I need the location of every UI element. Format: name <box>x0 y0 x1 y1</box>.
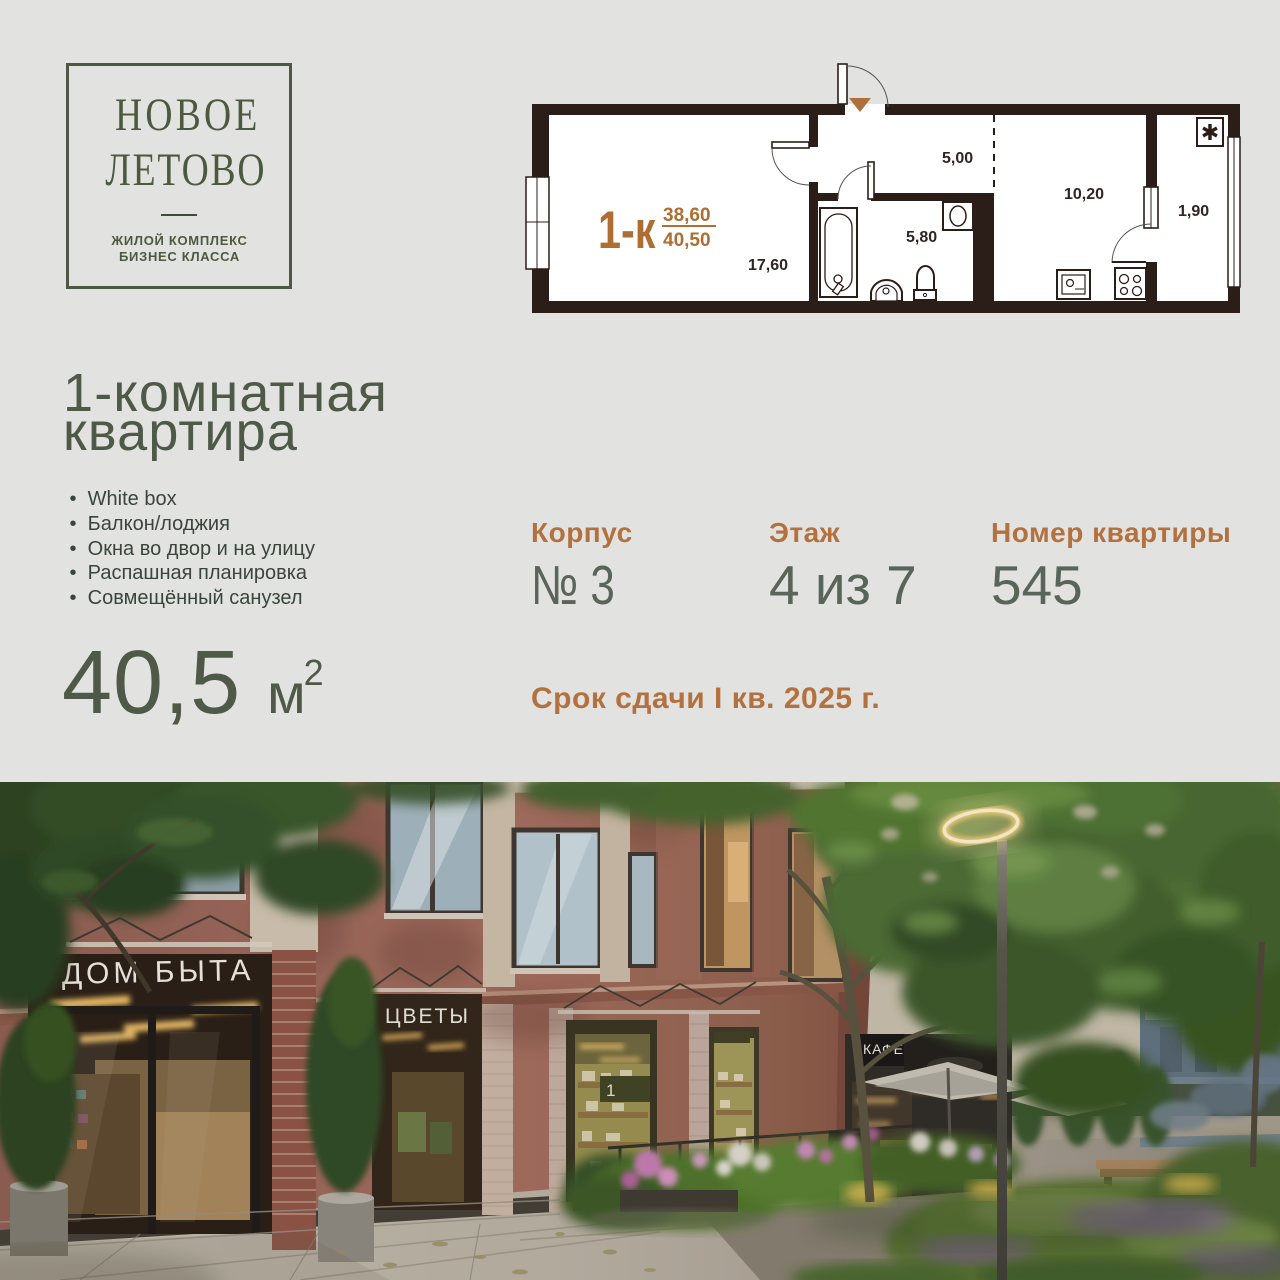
svg-text:5,00: 5,00 <box>942 150 973 167</box>
svg-text:✱: ✱ <box>1201 120 1219 145</box>
svg-text:5,80: 5,80 <box>906 229 937 246</box>
svg-text:1-к: 1-к <box>598 201 656 260</box>
svg-text:17,60: 17,60 <box>748 257 788 274</box>
svg-text:38,60: 38,60 <box>663 205 711 226</box>
svg-text:1,90: 1,90 <box>1178 203 1209 220</box>
svg-text:40,50: 40,50 <box>663 230 711 251</box>
svg-text:10,20: 10,20 <box>1064 186 1104 203</box>
